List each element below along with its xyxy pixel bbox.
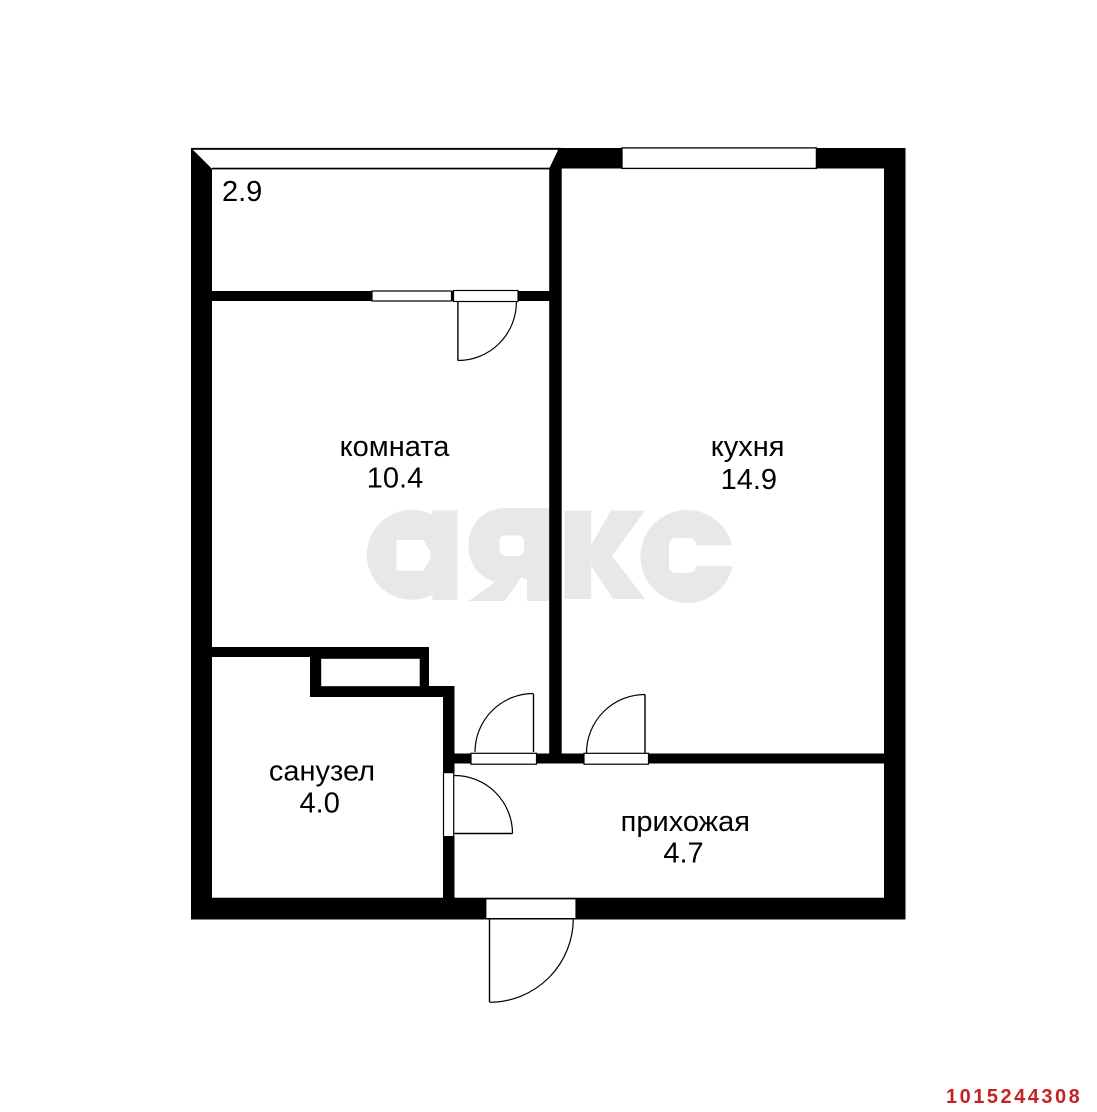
svg-text:2.9: 2.9: [222, 176, 262, 208]
svg-text:4.7: 4.7: [663, 838, 703, 870]
svg-text:14.9: 14.9: [721, 464, 777, 496]
svg-text:4.0: 4.0: [300, 788, 340, 820]
svg-text:кухня: кухня: [711, 431, 785, 463]
svg-text:1015244308: 1015244308: [946, 1086, 1082, 1108]
svg-text:10.4: 10.4: [367, 463, 423, 495]
svg-text:санузел: санузел: [269, 755, 375, 787]
svg-text:прихожая: прихожая: [621, 806, 750, 838]
svg-text:комната: комната: [340, 431, 451, 463]
